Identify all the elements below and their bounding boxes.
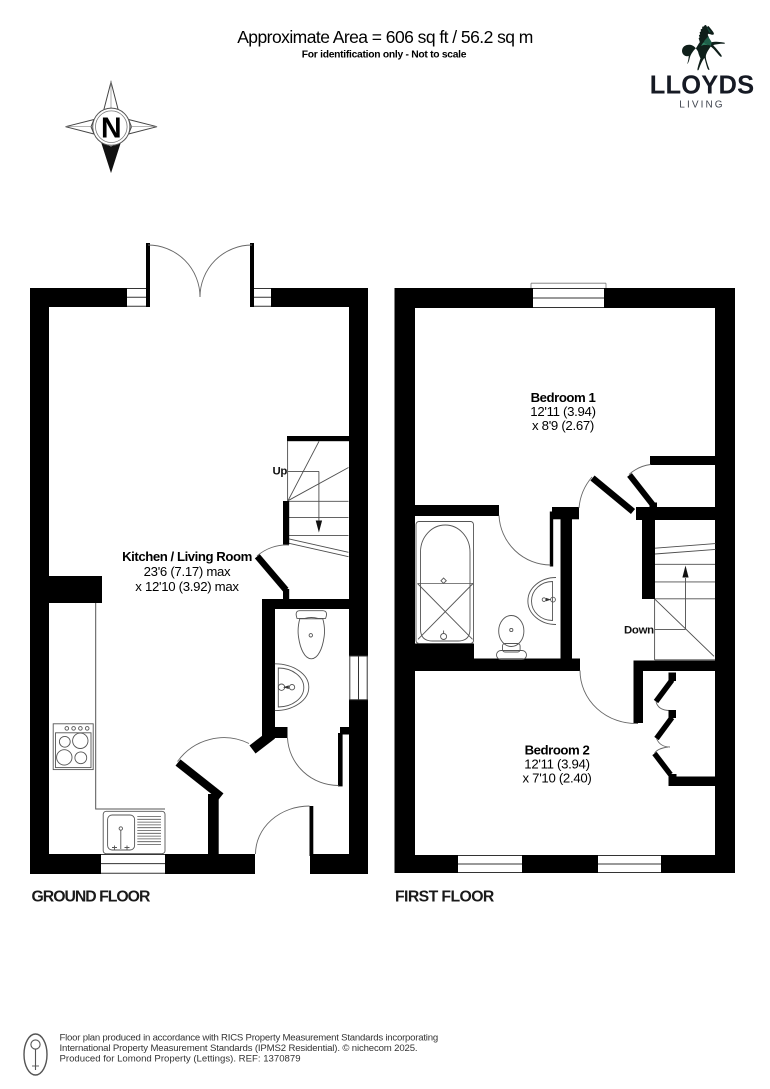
svg-text:Bedroom 2: Bedroom 2 [525, 743, 590, 758]
svg-text:Bedroom 1: Bedroom 1 [531, 390, 596, 405]
svg-text:For identification only - Not: For identification only - Not to scale [302, 50, 467, 61]
svg-text:Approximate Area = 606 sq ft /: Approximate Area = 606 sq ft / 56.2 sq m [237, 27, 533, 47]
svg-text:Down: Down [624, 624, 654, 636]
svg-text:International Property Measure: International Property Measurement Stand… [60, 1043, 418, 1054]
svg-text:Up: Up [273, 466, 288, 478]
svg-text:12'11 (3.94): 12'11 (3.94) [524, 757, 589, 772]
svg-text:LLOYDS: LLOYDS [650, 72, 755, 100]
svg-text:FIRST FLOOR: FIRST FLOOR [395, 888, 495, 905]
svg-text:x 12'10 (3.92) max: x 12'10 (3.92) max [135, 579, 239, 594]
svg-text:x 7'10 (2.40): x 7'10 (2.40) [523, 771, 592, 786]
svg-text:GROUND FLOOR: GROUND FLOOR [32, 888, 151, 905]
svg-text:x 8'9 (2.67): x 8'9 (2.67) [532, 418, 594, 433]
svg-text:Kitchen / Living Room: Kitchen / Living Room [122, 549, 252, 564]
svg-text:N: N [101, 112, 122, 144]
svg-text:Produced for Lomond Property (: Produced for Lomond Property (Lettings).… [60, 1054, 301, 1065]
svg-text:LIVING: LIVING [679, 100, 724, 111]
svg-text:Floor plan produced in accorda: Floor plan produced in accordance with R… [60, 1033, 438, 1044]
svg-text:12'11 (3.94): 12'11 (3.94) [530, 404, 595, 419]
svg-text:23'6 (7.17) max: 23'6 (7.17) max [144, 564, 231, 579]
